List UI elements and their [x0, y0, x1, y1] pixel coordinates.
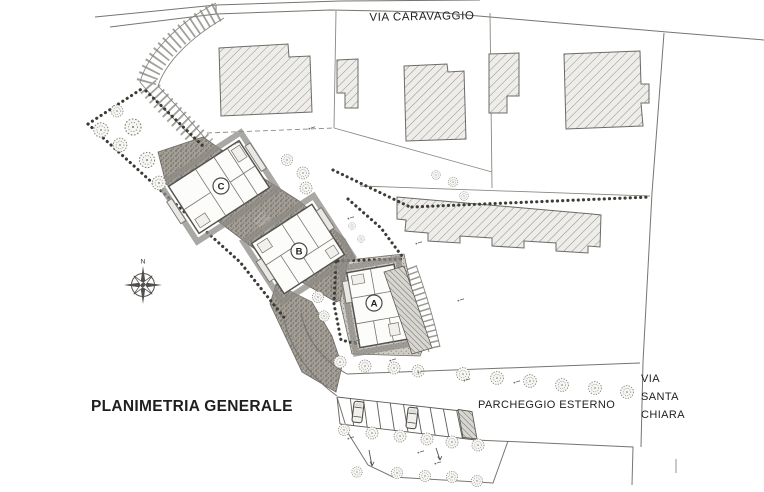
compass-rose-icon: N	[124, 259, 162, 305]
parked-car-1	[352, 401, 364, 423]
existing-building-2	[337, 59, 358, 108]
via-santa-chiara-line2: SANTA	[641, 391, 679, 403]
existing-building-3	[404, 64, 466, 141]
hatched-stall	[458, 410, 477, 440]
embankment-band-northwest	[140, 3, 224, 150]
existing-building-4	[489, 53, 519, 113]
drawing-title: PLANIMETRIA GENERALE	[91, 398, 293, 415]
compass-north-label: N	[141, 259, 146, 266]
via-santa-chiara-line1: VIA	[641, 373, 660, 385]
building-b-label: B	[296, 247, 303, 258]
existing-building-1	[219, 44, 312, 116]
road-label-via-santa-chiara: VIA SANTA CHIARA	[641, 373, 685, 421]
building-a-label: A	[371, 299, 378, 310]
road-label-via-caravaggio: VIA CARAVAGGIO	[369, 10, 474, 24]
site-plan-canvas: C B A	[0, 0, 764, 492]
parking-label: PARCHEGGIO ESTERNO	[478, 399, 615, 411]
existing-building-5	[564, 51, 649, 129]
site-plan-page: C B A	[0, 0, 764, 492]
parked-car-2	[406, 407, 418, 429]
via-santa-chiara-line3: CHIARA	[641, 409, 685, 421]
building-c-label: C	[218, 182, 225, 193]
